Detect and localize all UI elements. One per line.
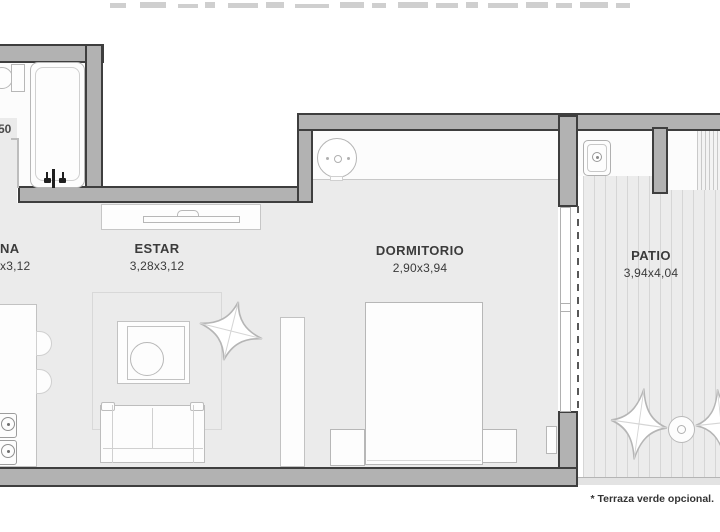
- washer-center-icon: [334, 155, 342, 163]
- cropped-text-fragment: [526, 2, 548, 8]
- cropped-text-fragment: [228, 3, 258, 8]
- wall-joint: [560, 117, 576, 129]
- stove-burner-dot: [7, 450, 10, 453]
- wall-segment-bath-right: [85, 44, 103, 203]
- tv-screen: [143, 216, 240, 223]
- coffee-table-tray-icon: [130, 342, 164, 376]
- cropped-text-fragment: [488, 3, 518, 8]
- cropped-text-fragment: [295, 4, 329, 8]
- wall-segment-middle-band: [18, 186, 313, 203]
- room-label-patio: PATIO 3,94x4,04: [590, 247, 712, 281]
- room-dimensions: 3,28x3,12: [97, 258, 217, 274]
- nightstand: [330, 429, 365, 466]
- sofa-cushion-line: [152, 408, 153, 448]
- wall-joint: [654, 129, 666, 133]
- bathtub-tap-icon: [44, 178, 51, 183]
- cropped-text-fragment: [205, 2, 215, 8]
- washer-dot: [326, 157, 329, 160]
- cropped-text-fragment: [178, 4, 198, 8]
- cropped-text-fragment: [372, 3, 386, 8]
- cropped-text-fragment: [466, 2, 478, 8]
- room-label-cocina: NA x3,12: [0, 240, 44, 274]
- footnote: * Terraza verde opcional.: [500, 493, 714, 505]
- laundry-sink-drain-dot: [596, 156, 599, 159]
- cropped-text-fragment: [110, 3, 126, 8]
- room-dimensions: 3,94x4,04: [590, 265, 712, 281]
- cropped-text-fragment: [556, 3, 572, 8]
- cropped-text-fragment: [266, 2, 284, 8]
- cropped-text-fragment: [340, 2, 364, 8]
- patio-louver-strip: [697, 131, 720, 190]
- patio-edge-strip: [578, 477, 720, 485]
- cropped-text-fragment: [616, 3, 630, 8]
- tv-stand: [177, 210, 199, 217]
- butterfly-chair: [604, 382, 674, 466]
- nightstand: [482, 429, 517, 463]
- bathtub-spout-icon: [52, 169, 55, 188]
- bathtub-inner: [35, 67, 80, 181]
- wall-joint: [87, 46, 101, 61]
- cropped-text-fragment: [436, 3, 458, 8]
- bed-footer-line: [367, 460, 481, 461]
- bathtub-tap-icon: [59, 178, 66, 183]
- sofa-arm-line: [193, 405, 194, 463]
- wardrobe-divider: [280, 317, 305, 467]
- room-name: NA: [0, 240, 44, 258]
- cropped-text-fragment: [580, 2, 608, 8]
- wall-pillar-patio: [652, 127, 668, 194]
- cropped-text-fragment: [140, 2, 166, 8]
- cropped-header-text: [0, 0, 720, 26]
- bed: [365, 302, 483, 465]
- terrace-projection-dashed-line: [577, 206, 579, 412]
- wall-segment-bottom: [0, 467, 578, 487]
- bathtub-tap-stem: [46, 172, 48, 178]
- sliding-door-lock: [560, 303, 571, 312]
- room-name: DORMITORIO: [348, 242, 492, 260]
- room-label-dormitorio: DORMITORIO 2,90x3,94: [348, 242, 492, 276]
- washer-dot: [347, 157, 350, 160]
- bathroom-door-leaf: [17, 140, 19, 188]
- wall-joint: [299, 188, 311, 201]
- floor-plan: 50 NA x3,12 ESTAR 3,28x3,12 DORMITORIO 2…: [0, 0, 720, 532]
- cropped-text-fragment: [398, 2, 428, 8]
- bathtub-tap-stem: [62, 172, 64, 178]
- dimension-fragment: 50: [0, 121, 18, 137]
- toilet-tank: [11, 64, 25, 92]
- room-dimensions: x3,12: [0, 258, 44, 274]
- room-name: PATIO: [590, 247, 712, 265]
- wall-joint: [87, 188, 101, 201]
- stove-burner-dot: [7, 423, 10, 426]
- sofa-arm-line: [112, 405, 113, 463]
- bathroom-door-jamb: [11, 138, 19, 140]
- sofa-seat-line: [103, 448, 203, 449]
- washer-tab: [330, 176, 343, 181]
- room-label-estar: ESTAR 3,28x3,12: [97, 240, 217, 274]
- room-name: ESTAR: [97, 240, 217, 258]
- room-dimensions: 2,90x3,94: [348, 260, 492, 276]
- wall-joint: [560, 469, 576, 485]
- patio-side-table-inner: [677, 425, 686, 434]
- wall-unit: [546, 426, 557, 454]
- wall-joint: [299, 115, 311, 129]
